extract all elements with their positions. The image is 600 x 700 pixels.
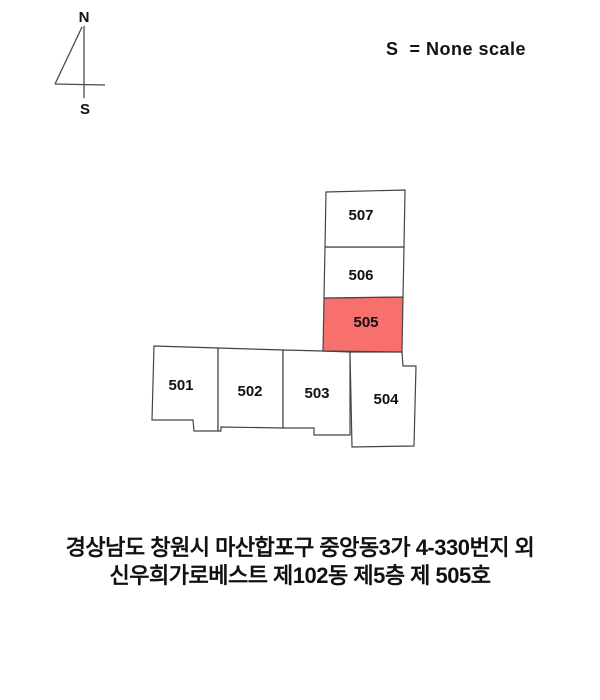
- address-caption: 경상남도 창원시 마산합포구 중앙동3가 4-330번지 외 신우희가로베스트 …: [0, 534, 600, 590]
- floor-plan-drawing: N S 501 502 503 504 505 506 507: [0, 0, 600, 700]
- unit-506-label: 506: [348, 267, 373, 284]
- address-line-2: 신우희가로베스트 제102동 제5층 제 505호: [0, 562, 600, 590]
- page: N S 501 502 503 504 505 506 507 S = None…: [0, 0, 600, 700]
- compass-north-arrow: N S: [55, 9, 105, 118]
- address-line-1: 경상남도 창원시 마산합포구 중앙동3가 4-330번지 외: [0, 534, 600, 562]
- unit-507-label: 507: [348, 207, 373, 224]
- compass-horizontal-line: [55, 84, 105, 85]
- unit-505-label: 505: [353, 314, 378, 331]
- compass-diagonal-line: [55, 27, 82, 84]
- compass-north-label: N: [79, 9, 90, 26]
- unit-503-label: 503: [304, 385, 329, 402]
- scale-note: S = None scale: [386, 39, 526, 60]
- compass-south-label: S: [80, 101, 90, 118]
- unit-504-label: 504: [373, 391, 399, 408]
- unit-502-label: 502: [237, 383, 262, 400]
- unit-501-label: 501: [168, 377, 193, 394]
